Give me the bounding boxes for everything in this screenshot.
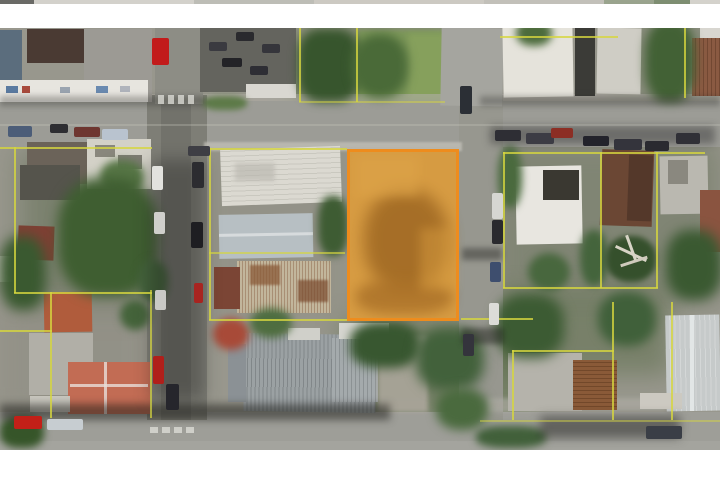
car	[492, 220, 503, 244]
parcel-line	[512, 350, 514, 420]
car	[495, 130, 521, 141]
tree	[0, 236, 46, 310]
tree	[298, 29, 360, 102]
car	[8, 126, 32, 137]
flowering-tree	[213, 318, 249, 350]
roof-detail	[668, 160, 688, 184]
roof-detail	[250, 265, 280, 285]
car	[188, 146, 210, 156]
car	[47, 419, 83, 430]
roof-detail	[298, 280, 328, 302]
car	[154, 212, 165, 234]
car	[152, 166, 163, 190]
tree	[496, 294, 564, 358]
highlighted-parcel-border	[347, 149, 459, 321]
car	[676, 133, 700, 144]
tree	[645, 20, 695, 102]
tree	[666, 230, 720, 300]
car	[551, 128, 573, 138]
parcel-line	[684, 28, 686, 98]
parcel-line	[209, 148, 211, 320]
car	[463, 334, 474, 356]
car	[645, 141, 669, 151]
car	[583, 136, 609, 146]
parcel-line	[480, 420, 720, 422]
parcel-line	[0, 330, 52, 332]
parcel-line	[656, 152, 658, 288]
building-roof	[573, 360, 617, 410]
car	[192, 162, 204, 188]
road-bottom-edge	[0, 441, 720, 450]
roof-detail	[288, 328, 320, 340]
car	[489, 303, 499, 325]
car	[102, 129, 128, 140]
car	[460, 86, 472, 114]
tree	[476, 426, 546, 448]
tree	[436, 388, 488, 430]
tree	[528, 253, 570, 291]
street-right-upper	[440, 27, 503, 106]
parcel-line	[299, 28, 301, 102]
car	[262, 44, 280, 53]
roof-detail	[22, 86, 30, 93]
tree	[350, 322, 420, 368]
parcel-line	[299, 101, 445, 103]
parcel-line	[150, 290, 152, 418]
shadow	[0, 96, 205, 106]
building-roof	[246, 84, 296, 98]
lane-line	[0, 124, 720, 126]
crosswalk-stripe	[178, 95, 184, 104]
car	[209, 42, 227, 51]
roof-ridge	[690, 315, 694, 411]
roof-detail	[6, 86, 18, 93]
aerial-parcel-photo	[0, 0, 720, 480]
shadow	[0, 404, 390, 420]
roof-detail	[543, 170, 579, 200]
parcel-line	[671, 302, 673, 420]
roof-detail	[235, 163, 275, 181]
car	[155, 290, 166, 310]
frame-band-top	[0, 4, 720, 28]
car	[191, 222, 203, 248]
building-roof	[596, 28, 641, 95]
roof-detail	[627, 155, 653, 222]
parcel-line	[503, 152, 705, 154]
car	[222, 58, 242, 67]
tree	[598, 292, 656, 346]
parcel-line	[500, 36, 618, 38]
building-roof	[228, 344, 246, 402]
tree	[120, 300, 150, 330]
car	[526, 133, 554, 144]
crosswalk-stripe	[150, 427, 158, 433]
shadow	[462, 248, 502, 260]
parcel-line	[356, 28, 358, 102]
tree	[250, 308, 292, 338]
car	[236, 32, 254, 41]
car	[74, 127, 100, 137]
car	[166, 384, 179, 410]
car	[194, 283, 203, 303]
building-roof	[508, 353, 582, 411]
car	[646, 426, 682, 439]
parcel-line	[503, 287, 658, 289]
red-truck	[152, 38, 169, 65]
crosswalk-stripe	[174, 427, 182, 433]
parcel-line	[600, 152, 602, 288]
tree	[318, 196, 348, 256]
car	[50, 124, 68, 133]
crosswalk-stripe	[186, 427, 194, 433]
tree	[580, 230, 608, 286]
parcel-line	[612, 302, 614, 420]
parcel-line	[14, 147, 16, 293]
red-truck	[153, 356, 164, 384]
crosswalk-stripe	[162, 427, 170, 433]
parcel-line	[0, 147, 152, 149]
building-roof	[640, 393, 682, 409]
building-roof	[214, 267, 240, 309]
crosswalk-stripe	[168, 95, 174, 104]
parcel-line	[209, 319, 347, 321]
car	[492, 193, 503, 219]
parcel-line	[503, 152, 505, 288]
parcel-line	[50, 292, 52, 418]
crosswalk-stripe	[158, 95, 164, 104]
roof-detail	[96, 86, 108, 93]
parcel-line	[209, 252, 345, 254]
parcel-line	[512, 350, 614, 352]
roof-ridge	[70, 384, 148, 387]
frame-band-bottom	[0, 450, 720, 480]
hedge	[203, 96, 247, 110]
parcel-line	[14, 292, 152, 294]
roof-detail	[60, 87, 70, 93]
car	[14, 416, 42, 429]
building-roof	[27, 29, 85, 63]
crosswalk-stripe	[188, 95, 194, 104]
car	[490, 262, 501, 282]
parcel-line	[209, 148, 347, 150]
car	[614, 139, 642, 150]
roof-detail	[120, 86, 130, 92]
car	[250, 66, 268, 75]
building-roof	[692, 38, 720, 96]
tree	[352, 34, 408, 98]
